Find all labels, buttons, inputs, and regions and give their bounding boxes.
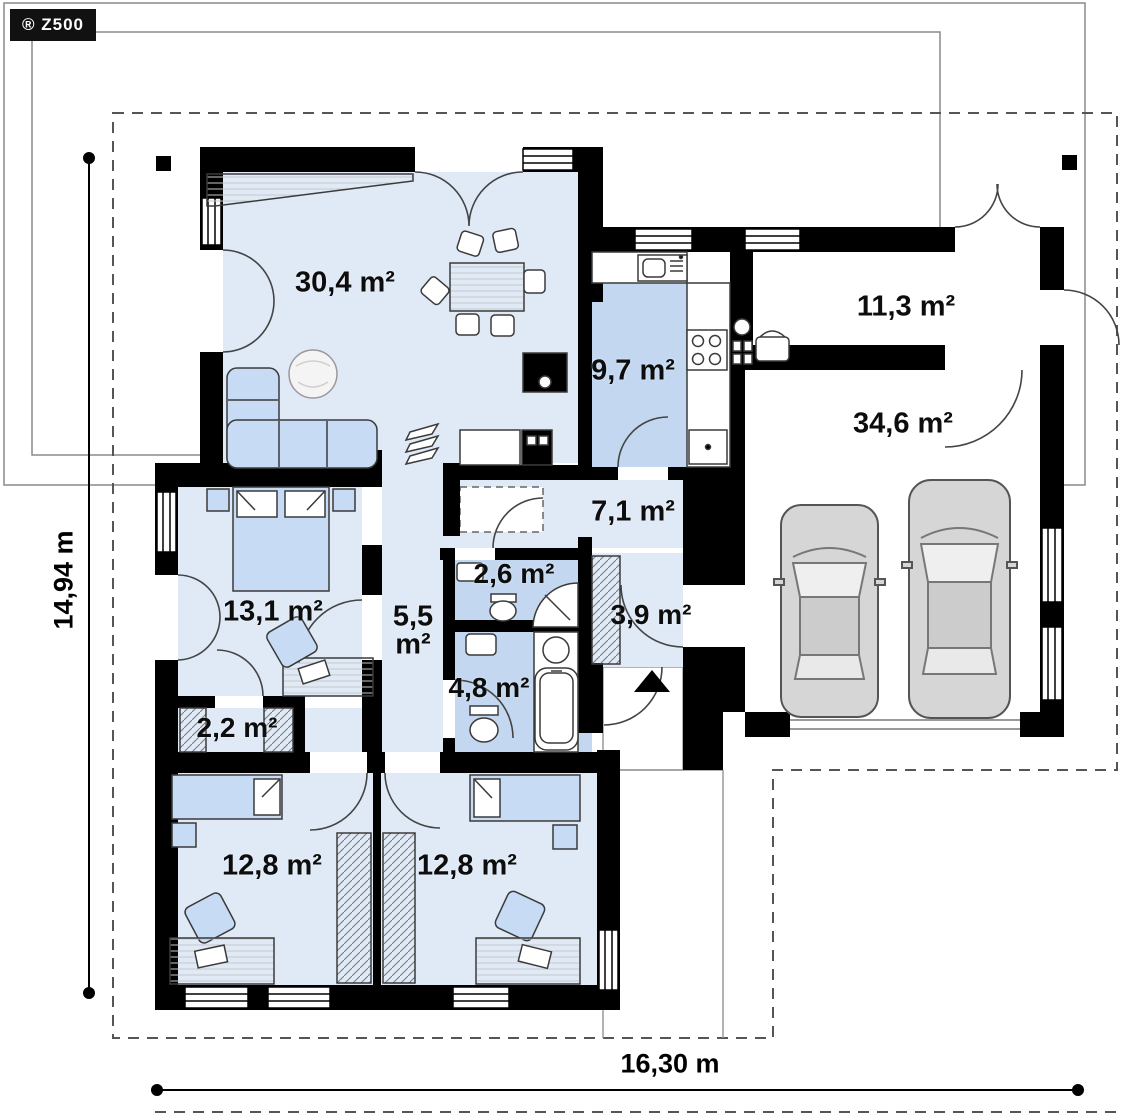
dimension-width-label: 16,30 m [620,1049,719,1080]
nightstand [333,489,355,511]
room-label-bedroom-2: 12,8 m² [222,850,322,883]
bedroom3-wardrobe [383,833,415,983]
floorplan-drawing [0,0,1122,1118]
marker-square [1062,155,1077,170]
bath-basin [466,634,496,655]
room-label-kitchen: 9,7 m² [591,355,675,388]
double-bed [233,487,329,591]
chimney-block [522,430,552,465]
bathtub [535,668,578,750]
dimension-height-label: 14,94 m [49,530,80,629]
nightstand [172,823,196,847]
room-label-wc: 2,6 m² [474,558,555,590]
car-right [902,480,1017,718]
desk [283,658,373,696]
room-label-corridor: 5,5 m² [380,603,446,658]
round-rug [289,350,337,398]
room-label-bedroom-1: 13,1 m² [223,596,323,629]
room-label-hall: 7,1 m² [591,496,675,529]
room-label-bathroom: 4,8 m² [449,672,530,704]
dimension-line-left [84,153,94,998]
room-label-wardrobe: 2,2 m² [197,712,278,744]
bedroom2-wardrobe [337,833,371,983]
dimension-line-bottom [152,1085,1083,1095]
bath-toilet [470,706,498,742]
car-left [774,505,885,717]
room-label-bedroom-3: 12,8 m² [417,850,517,883]
room-label-garage: 34,6 m² [853,408,953,441]
room-label-utility: 11,3 m² [857,291,955,324]
kitchen-hob [687,330,727,370]
brand-logo-text: ® Z500 [22,15,84,35]
fridge [689,430,727,464]
kitchen-sink [638,255,687,281]
room-label-living-dining: 30,4 m² [295,267,395,300]
nightstand [207,489,229,511]
floor-corridor-top [382,450,443,553]
room-label-entry: 3,9 m² [611,599,692,631]
marker-square [156,156,171,171]
washing-machine [543,637,569,663]
wc-toilet [490,594,516,621]
brand-badge: ® Z500 [10,9,96,41]
pantry-cabinet [460,430,520,465]
floorplan-page: ® Z500 30,4 m² 9,7 m² 11,3 m² 34,6 m² 7,… [0,0,1122,1118]
fireplace [523,353,567,392]
nightstand [553,825,577,849]
attic-hatch-dashed [460,487,543,532]
